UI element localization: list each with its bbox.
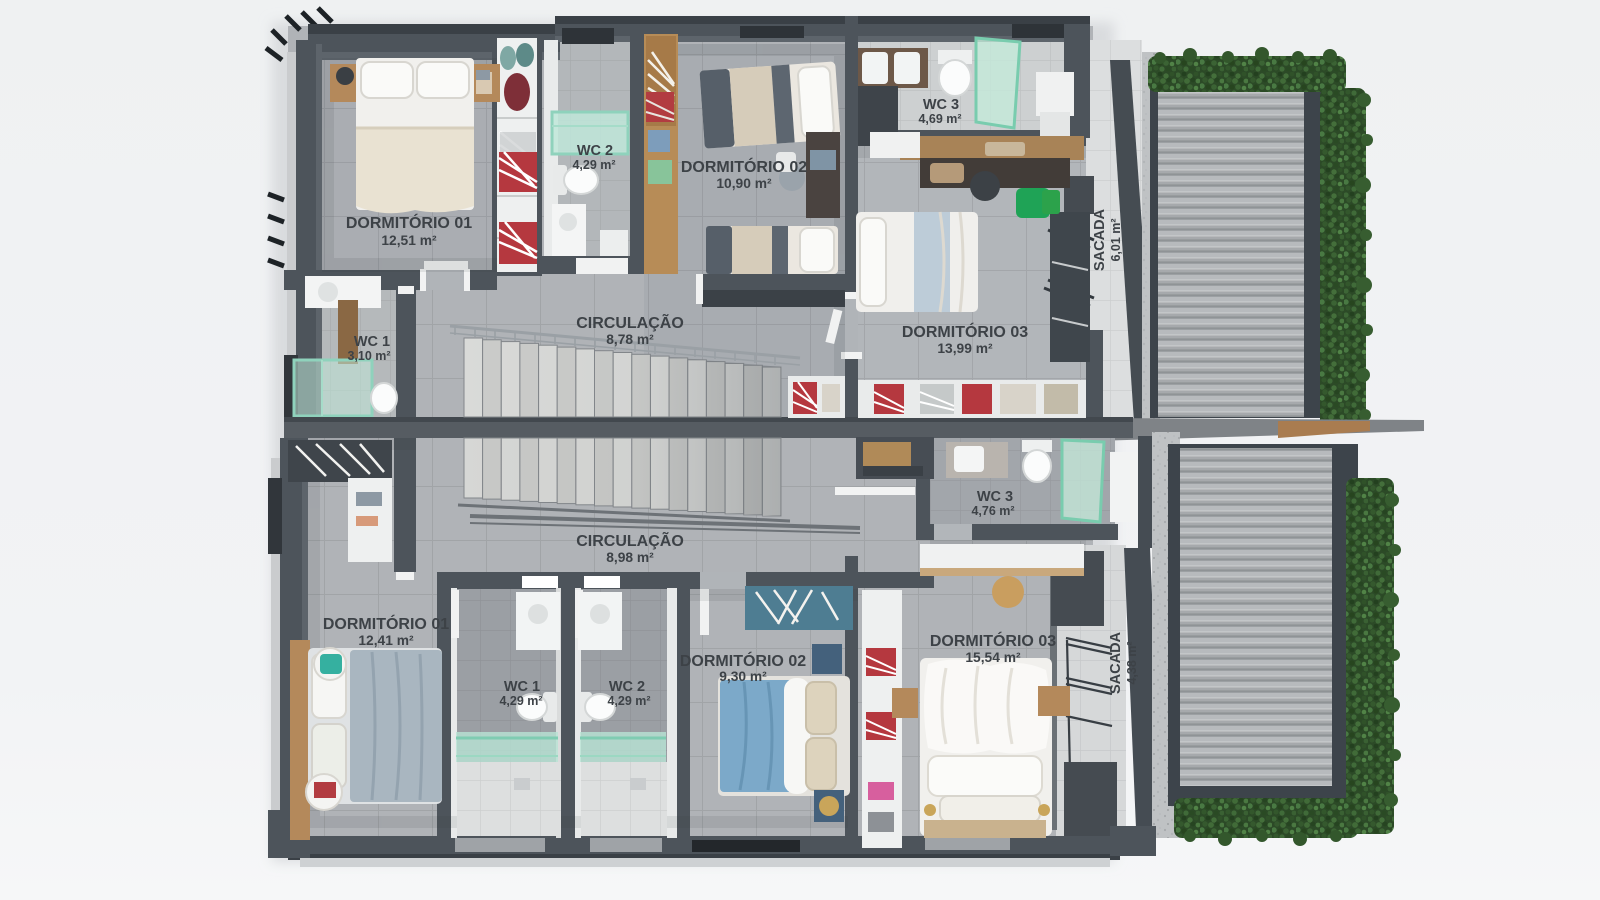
svg-text:13,99 m²: 13,99 m² [937,341,993,356]
svg-text:4,29 m²: 4,29 m² [572,158,615,172]
svg-text:4,29 m²: 4,29 m² [499,694,542,708]
svg-text:15,54 m²: 15,54 m² [965,650,1021,665]
svg-text:WC 3: WC 3 [977,489,1013,505]
svg-text:SACADA: SACADA [1092,208,1108,271]
svg-text:DORMITÓRIO 02: DORMITÓRIO 02 [680,651,806,670]
svg-text:WC 2: WC 2 [577,143,613,159]
svg-text:DORMITÓRIO 01: DORMITÓRIO 01 [323,614,449,633]
svg-text:WC 1: WC 1 [354,334,390,350]
svg-text:CIRCULAÇÃO: CIRCULAÇÃO [576,312,684,332]
svg-text:CIRCULAÇÃO: CIRCULAÇÃO [576,530,684,550]
svg-text:4,76 m²: 4,76 m² [971,504,1014,518]
svg-text:4,38 m²: 4,38 m² [1125,641,1139,684]
svg-text:9,30 m²: 9,30 m² [719,669,767,684]
svg-text:3,10 m²: 3,10 m² [347,349,390,363]
svg-text:12,51 m²: 12,51 m² [381,233,437,248]
svg-text:6,01 m²: 6,01 m² [1109,218,1123,261]
svg-text:DORMITÓRIO 03: DORMITÓRIO 03 [930,631,1056,650]
svg-text:8,78 m²: 8,78 m² [606,332,654,347]
svg-text:DORMITÓRIO 03: DORMITÓRIO 03 [902,322,1028,341]
svg-text:WC 2: WC 2 [609,679,645,695]
svg-text:4,29 m²: 4,29 m² [607,694,650,708]
svg-text:12,41 m²: 12,41 m² [358,633,414,648]
svg-text:4,69 m²: 4,69 m² [918,112,961,126]
svg-text:WC 1: WC 1 [504,679,540,695]
svg-text:DORMITÓRIO 02: DORMITÓRIO 02 [681,157,807,176]
svg-text:10,90 m²: 10,90 m² [716,176,772,191]
svg-text:8,98 m²: 8,98 m² [606,550,654,565]
svg-text:SACADA: SACADA [1108,631,1124,694]
svg-text:DORMITÓRIO 01: DORMITÓRIO 01 [346,213,472,232]
svg-text:WC 3: WC 3 [923,97,959,113]
